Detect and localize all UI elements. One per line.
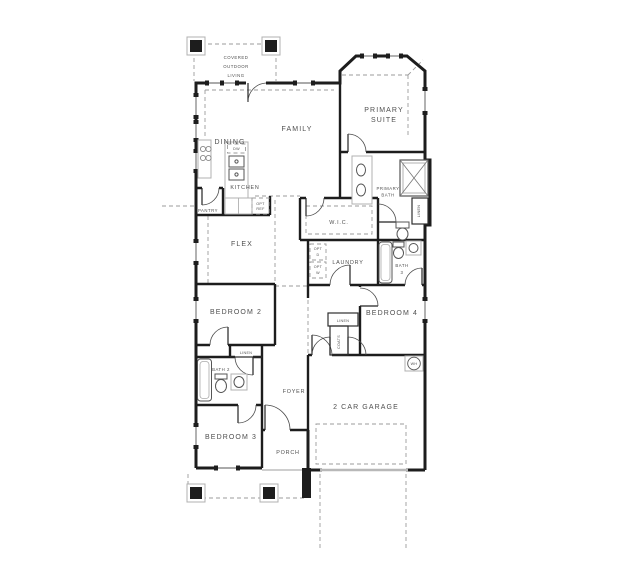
label-opt-dryer: D [317,253,320,257]
floor-plan-page: COVERED OUTDOOR LIVING DINING FAMILY PRI… [0,0,617,582]
label-kitchen: KITCHEN [230,185,259,191]
bathtub-icon [198,359,212,401]
sink-icon [357,184,366,196]
label-bedroom2: BEDROOM 2 [210,309,262,316]
window-icon [205,80,239,87]
sink-icon [357,164,366,176]
toilet-icon [396,222,409,240]
door-primary-suite [348,134,366,152]
opt-ref-box [252,198,269,214]
label-primary-suite: PRIMARY [364,107,403,114]
label-opt-ref: REF [256,207,265,211]
label-bedroom4: BEDROOM 4 [366,310,418,317]
window-icon [193,239,200,265]
window-icon [193,297,200,323]
door-bedroom4 [360,288,378,306]
label-linen-hall: LINEN [337,319,349,323]
column-icon [302,468,311,498]
label-linen-bath2: LINEN [240,351,252,355]
label-bath3: 3 [401,270,404,275]
window-icon [193,120,200,142]
label-porch: PORCH [276,450,299,456]
window-icon [293,80,315,87]
column-icon [190,487,202,499]
label-flex: FLEX [231,241,253,248]
column-icon [265,40,277,52]
label-covered-outdoor-living: LIVING [227,73,244,78]
label-opt-washer: OPT [314,265,323,269]
columns [187,37,311,502]
door-coats-left [312,337,330,355]
bathtub-icon [379,242,392,283]
label-wic: W.I.C. [329,220,348,226]
label-bedroom3: BEDROOM 3 [205,434,257,441]
door-bath2 [235,357,253,375]
door-bedroom2 [210,327,228,345]
window-icon [193,93,200,119]
primary-vanity [352,156,372,204]
label-foyer: FOYER [283,389,306,395]
label-bath3: BATH [395,263,408,268]
door-coats-right [348,337,366,355]
sink-icon [231,374,247,390]
label-family: FAMILY [282,126,313,133]
window-icon [214,465,240,472]
door-pantry [202,188,219,205]
label-primary-bath: BATH [381,193,394,198]
shower-icon [400,160,428,196]
label-dining: DINING [214,139,245,146]
label-garage: 2 CAR GARAGE [333,404,399,411]
door-laundry [330,265,350,285]
window-icon [360,53,377,60]
label-dishwasher: DW [233,147,240,151]
fixtures [198,140,429,401]
kitchen-counter [198,140,211,178]
label-linen-primary: LINEN [417,205,421,217]
label-opt-ref: OPT [256,202,265,206]
sink-icon [406,241,421,255]
door-front-entry [265,405,290,430]
label-bath2: BATH 2 [212,367,230,372]
column-icon [190,40,202,52]
window-icon [422,87,429,115]
toilet-icon [393,242,404,259]
label-covered-outdoor-living: OUTDOOR [223,64,248,69]
door-primary-bath [378,204,396,222]
window-icon [386,53,403,60]
label-opt-dryer: OPT [314,247,323,251]
window-icon [193,423,200,449]
label-pantry: PANTRY [198,208,218,213]
column-icon [263,487,275,499]
door-bedroom3 [238,405,256,423]
label-water-heater: WH [411,362,418,366]
label-opt-washer: W [316,271,320,275]
toilet-icon [215,374,227,393]
label-primary-suite: SUITE [371,117,397,124]
window-icon [422,297,429,323]
door-wic [306,198,324,216]
door-bath3 [405,268,422,285]
label-covered-outdoor-living: COVERED [224,55,249,60]
door-outdoor-living [248,83,266,102]
label-coats: COATS [337,335,341,349]
label-primary-bath: PRIMARY [377,186,400,191]
label-laundry: LAUNDRY [332,260,363,266]
floor-plan-drawing: COVERED OUTDOOR LIVING DINING FAMILY PRI… [0,0,617,582]
